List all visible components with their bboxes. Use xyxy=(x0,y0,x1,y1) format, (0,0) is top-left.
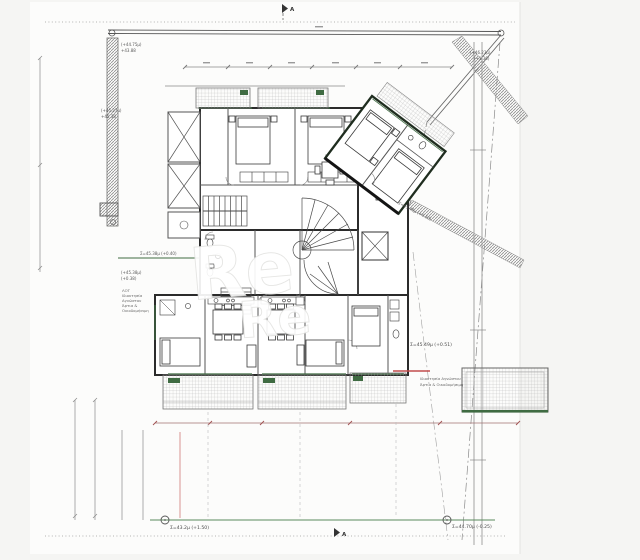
level-left-1: (+45.38μ) xyxy=(121,270,142,275)
floor-plan-drawing: (+44.75μ) +43.88 (+45.27μ) +45.38 (+46.2… xyxy=(0,0,640,560)
watermark-text-2: Re xyxy=(237,287,313,350)
bed-lower-3 xyxy=(352,306,380,346)
level-left-2: (+0.38) xyxy=(121,276,137,281)
level-bottom-left: Σ=43.2μ (+1.50) xyxy=(170,525,209,531)
level-wall-mid-2: +45.38 xyxy=(101,114,116,119)
section-marker-top-label: A xyxy=(290,7,295,13)
elevator xyxy=(362,232,388,260)
section-marker-bottom-label: A xyxy=(342,532,347,538)
bed-lower-1 xyxy=(160,338,200,366)
floor-plan-canvas: (+44.75μ) +43.88 (+45.27μ) +45.38 (+46.2… xyxy=(0,0,640,560)
level-wall-mid-1: (+45.27μ) xyxy=(101,108,122,113)
level-wall-top-2: +43.88 xyxy=(121,48,136,53)
level-right: Σ=45.49μ (+0.51) xyxy=(410,342,452,348)
level-bottom-right: Σ=44.70μ (-0.25) xyxy=(452,524,492,530)
parcel-right-1: Ιδιοκτησία Αγνώστου xyxy=(420,376,461,381)
level-edge-top-left: Σ=45.38μ (+0.40) xyxy=(140,251,177,256)
level-top-right-1: (+46.23μ) xyxy=(470,50,491,55)
parcel-left-5: Οικοδομήσιμη xyxy=(122,308,149,313)
level-top-right-2: (+1.36) xyxy=(474,56,490,61)
bed-upper-1 xyxy=(229,116,277,164)
lightwell-voids xyxy=(168,112,200,238)
level-wall-top-1: (+44.75μ) xyxy=(121,42,142,47)
parcel-right-2: Άρτια & Οικοδομήσιμη xyxy=(420,382,464,387)
balcony-right xyxy=(462,368,548,412)
